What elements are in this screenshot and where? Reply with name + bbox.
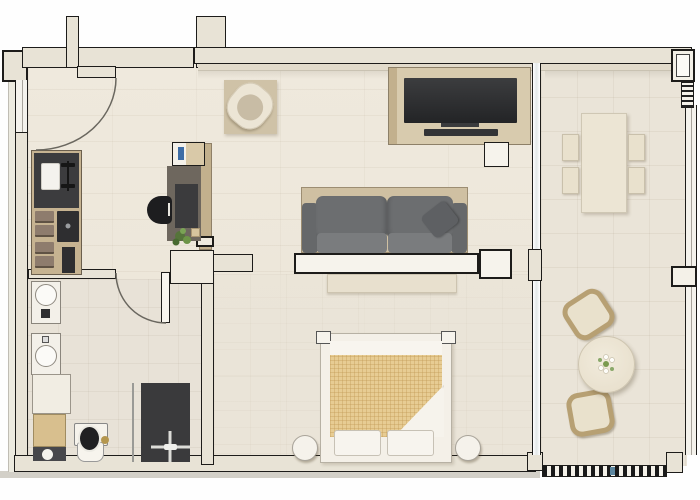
round-coffee-table: [578, 336, 635, 393]
office-wall-cabinet: [172, 142, 205, 166]
terrace-window-shadow: [545, 70, 685, 79]
dining-chair-top-left: [562, 134, 579, 161]
wall-bathroom-corner-block: [170, 250, 214, 284]
floor-plan-canvas: [0, 0, 700, 500]
bath-storage-cabinet: [32, 374, 71, 414]
window-left: [15, 80, 28, 134]
pillar-top-right-inner: [676, 54, 690, 77]
kitchen-drawer-4: [35, 256, 54, 268]
wall-bathroom-bedroom: [201, 254, 214, 465]
dining-table: [581, 113, 627, 213]
kitchen-sink: [41, 163, 60, 190]
dining-chair-bottom-right: [628, 167, 645, 194]
wall-bedroom-north: [294, 253, 479, 274]
sofa-arm-right: [451, 203, 467, 253]
tv-console-edge: [389, 68, 397, 144]
tv-stand: [441, 123, 479, 127]
kitchen-drawer-2: [35, 225, 54, 237]
sofa-seat-cushion-left: [317, 233, 387, 253]
console-stool: [484, 142, 509, 167]
terrace-post-right: [666, 452, 683, 473]
toilet-seat: [78, 425, 101, 452]
office-cabinet-blue-item: [178, 147, 184, 160]
wall-bedroom-doorjamb: [210, 254, 253, 272]
lounge-stool-bottom: [565, 387, 617, 438]
armchair-seat-cushion: [232, 89, 269, 126]
media-shelf-slot: [424, 129, 498, 136]
railing-glass-tile: [610, 467, 615, 475]
bed-pillow-right: [387, 430, 434, 456]
bathroom-door-leaf: [161, 272, 170, 323]
dining-chair-bottom-left: [562, 167, 579, 194]
kitchen-tall-appliance: [62, 247, 75, 273]
washing-machine-door: [35, 284, 57, 306]
nightstand-round-right: [455, 435, 481, 461]
kitchen-drawer-1: [35, 211, 54, 223]
office-chair: [147, 196, 172, 224]
glass-partition-post: [528, 249, 542, 281]
washing-machine-panel: [41, 309, 50, 318]
bed-post-left: [316, 331, 331, 344]
bedroom-low-dresser: [327, 274, 457, 293]
toilet-flush-button: [101, 436, 109, 444]
bed-post-right: [441, 331, 456, 344]
wall-stub-left: [66, 16, 79, 68]
vent-hatch-icon: [681, 82, 694, 108]
dryer-door: [35, 345, 57, 367]
vanity-top: [33, 414, 66, 447]
wall-top-left: [22, 47, 194, 68]
terrace-railing: [542, 465, 667, 477]
nightstand-round-left: [292, 435, 318, 461]
wall-side-block: [479, 249, 512, 279]
office-chair-seat-line: [168, 203, 170, 216]
pillar-mid-right: [671, 266, 697, 287]
vanity-basin: [42, 449, 53, 460]
wall-top-window-band: [194, 47, 692, 64]
kitchen-oven: [57, 211, 79, 242]
shower-glass-panel: [132, 383, 134, 462]
office-desk-pad: [175, 184, 198, 228]
dining-chair-top-right: [628, 134, 645, 161]
office-desk-box: [191, 228, 200, 237]
entrance-door-leaf: [77, 66, 116, 78]
kitchen-drawer-3: [35, 242, 54, 254]
wall-left: [15, 132, 28, 472]
bed-pillow-left: [334, 430, 381, 456]
tv: [404, 78, 517, 123]
sofa-seat-cushion-right: [388, 233, 452, 253]
pillar-top-right: [671, 49, 695, 82]
slab-shadow-bottom: [0, 471, 540, 478]
dryer-panel: [42, 336, 49, 343]
walk-in-shower: [141, 383, 190, 462]
